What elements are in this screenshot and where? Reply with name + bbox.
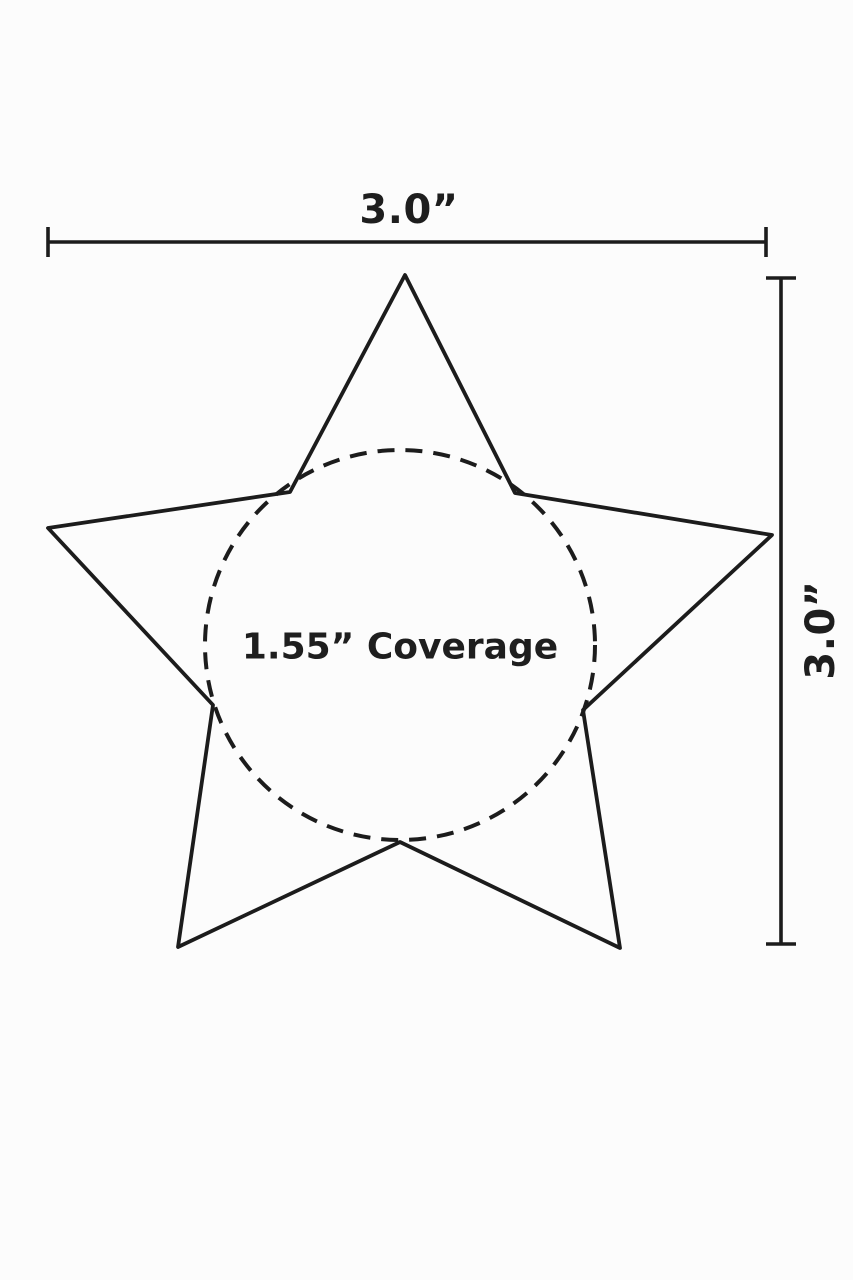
star-dimension-diagram: 3.0” 3.0” 1.55” Coverage [0,0,853,1280]
height-dimension-label: 3.0” [798,580,844,679]
star-outline [48,275,772,948]
height-dimension-line [766,278,796,944]
coverage-label: 1.55” Coverage [242,627,558,668]
width-dimension-label: 3.0” [359,187,458,233]
